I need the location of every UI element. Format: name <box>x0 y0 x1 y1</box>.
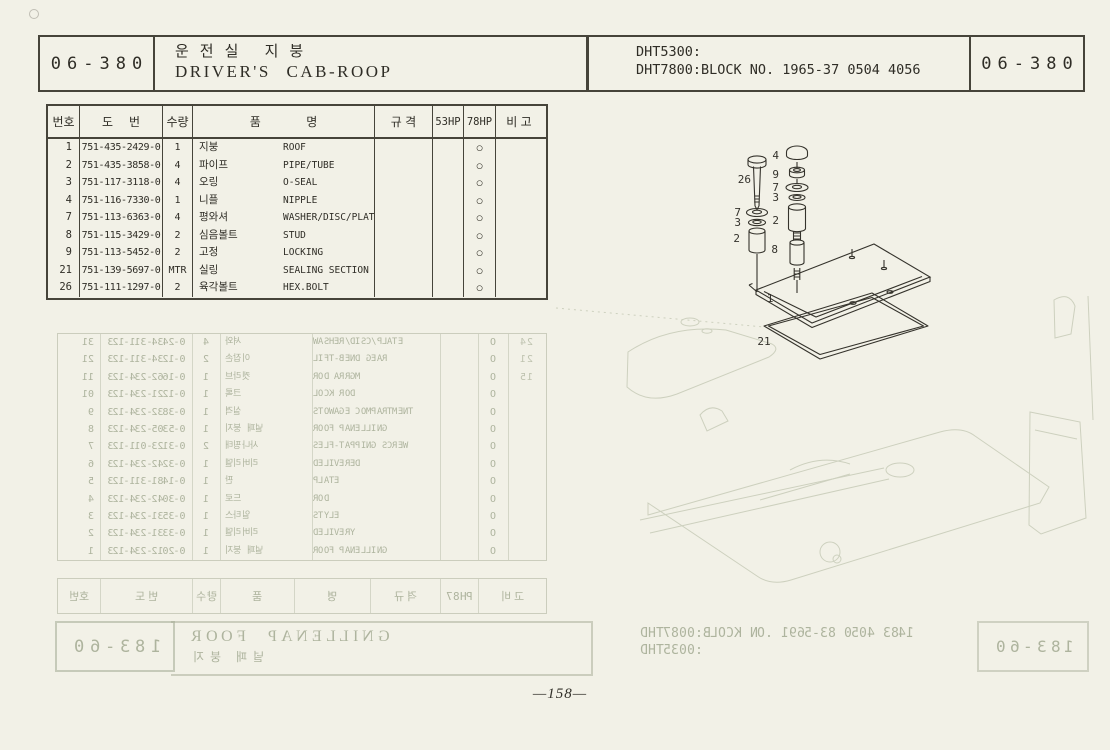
bleed-through-stamp-left: 06-381 <box>55 621 175 672</box>
cell-no: 8 <box>48 227 80 245</box>
part-name-english: STUD <box>283 227 306 245</box>
cell-part-number: 751-116-7330-0 <box>80 192 163 210</box>
part-name-english: NIPPLE <box>283 192 317 210</box>
callout-7r: 7 <box>772 181 779 194</box>
cell-53hp <box>433 209 464 227</box>
part-name-korean: 실링 <box>193 262 283 280</box>
cell-78hp-circle: ○ <box>464 209 496 227</box>
bleed-through-row: 13 321-113-4342-0 4 와셔 WASHER/DISC/PLATE… <box>58 334 546 351</box>
cell-no: 1 <box>48 139 80 157</box>
cell-spec <box>375 244 433 262</box>
part-name-english: WASHER/DISC/PLATE <box>283 209 375 227</box>
model-line-1: DHT5300: <box>636 44 969 62</box>
cell-qty: MTR <box>163 262 193 280</box>
callout-1: 1 <box>767 292 774 305</box>
bleed-through-row: 6 321-432-2423-0 1 델리버리 DELIVERED O <box>58 456 546 473</box>
bleed-through-row: 8 321-432-5035-0 1 지붕 패널 ROOF PANELLING … <box>58 421 546 438</box>
bleed-through-row: 9 321-432-2383-0 1 격실 STOWAGE COMPARTMEN… <box>58 404 546 421</box>
col-header-spec: 규 격 <box>375 106 433 137</box>
cell-remark <box>496 262 542 280</box>
cell-name: 니플 NIPPLE <box>193 192 375 210</box>
col-header-qty: 수량 <box>163 106 193 137</box>
cell-53hp <box>433 192 464 210</box>
cell-part-number: 751-435-2429-0 <box>80 139 163 157</box>
cell-remark <box>496 192 542 210</box>
table-row: 1 751-435-2429-0 1 지붕 ROOF ○ <box>48 139 546 157</box>
table-row: 9 751-113-5452-0 2 고정 LOCKING ○ <box>48 244 546 262</box>
cell-qty: 1 <box>163 139 193 157</box>
cell-name: 심음볼트 STUD <box>193 227 375 245</box>
bleed-through-title-block: ROOF PANELLING 지붕 패널 <box>171 621 593 676</box>
bleed-through-row: 5 321-113-1841-0 1 판 PLATE O <box>58 473 546 490</box>
callout-26: 26 <box>738 173 751 186</box>
bleed-through-row: 1 321-432-2102-0 1 지붕 패널 ROOF PANELLING … <box>58 543 546 560</box>
cell-spec <box>375 209 433 227</box>
col-header-53hp: 53HP <box>433 106 464 137</box>
bleed-through-stamp-right: 06-381 <box>977 621 1089 672</box>
callout-9: 9 <box>772 168 779 181</box>
cell-spec <box>375 279 433 297</box>
cell-part-number: 751-139-5697-0 <box>80 262 163 280</box>
cell-78hp-circle: ○ <box>464 262 496 280</box>
part-name-korean: 오링 <box>193 174 283 192</box>
part-name-english: PIPE/TUBE <box>283 157 334 175</box>
page-title-korean: 운전실 지붕 <box>175 42 393 62</box>
cell-name: 고정 LOCKING <box>193 244 375 262</box>
cell-no: 7 <box>48 209 80 227</box>
part-name-korean: 심음볼트 <box>193 227 283 245</box>
part-name-english: SEALING SECTION <box>283 262 369 280</box>
cell-part-number: 751-113-6363-0 <box>80 209 163 227</box>
model-block: DHT5300: DHT7800:BLOCK NO. 1965-37 0504 … <box>586 35 1085 92</box>
cell-remark <box>496 139 542 157</box>
part-name-korean: 육각볼트 <box>193 279 283 297</box>
cell-no: 4 <box>48 192 80 210</box>
bleed-through-row: 3 321-432-1353-0 1 스타일 STYLE O <box>58 508 546 525</box>
cell-spec <box>375 227 433 245</box>
parts-table-header: 번호 도 번 수량 품 명 규 격 53HP 78HP 비 고 <box>48 106 546 139</box>
page-title: 운전실 지붕 DRIVER'S CAB-ROOP <box>155 37 393 90</box>
cell-78hp-circle: ○ <box>464 139 496 157</box>
cell-qty: 2 <box>163 227 193 245</box>
binder-corner-mark <box>29 9 39 19</box>
model-lines: DHT5300: DHT7800:BLOCK NO. 1965-37 0504 … <box>588 37 969 90</box>
cell-no: 2 <box>48 157 80 175</box>
cell-remark <box>496 279 542 297</box>
cell-qty: 2 <box>163 279 193 297</box>
cell-remark <box>496 174 542 192</box>
cell-remark <box>496 157 542 175</box>
page-number: —158— <box>505 686 615 703</box>
col-header-drawing-no: 도 번 <box>80 106 163 137</box>
title-block: 06-380 운전실 지붕 DRIVER'S CAB-ROOP <box>38 35 589 92</box>
cell-part-number: 751-117-3118-0 <box>80 174 163 192</box>
cell-no: 21 <box>48 262 80 280</box>
callout-8: 8 <box>771 243 778 256</box>
bleed-through-row: 4 321-432-2403-0 1 로드 ROD O <box>58 491 546 508</box>
cell-name: 실링 SEALING SECTION <box>193 262 375 280</box>
col-header-no: 번호 <box>48 106 80 137</box>
part-name-english: O-SEAL <box>283 174 317 192</box>
callout-4: 4 <box>772 149 779 162</box>
cell-part-number: 751-435-3858-0 <box>80 157 163 175</box>
bleed-through-art <box>556 296 1093 582</box>
bleed-through-row: 2 321-432-1333-0 1 델리버리 DELIVERY O <box>58 525 546 542</box>
cell-qty: 4 <box>163 174 193 192</box>
part-name-korean: 지붕 <box>193 139 283 157</box>
cell-name: 지붕 ROOF <box>193 139 375 157</box>
callout-2l: 2 <box>733 232 740 245</box>
section-code: 06-380 <box>40 37 155 90</box>
col-header-remark: 비 고 <box>496 106 542 137</box>
cell-remark <box>496 227 542 245</box>
parts-table: 번호 도 번 수량 품 명 규 격 53HP 78HP 비 고 1 751-43… <box>46 104 548 300</box>
cell-53hp <box>433 227 464 245</box>
section-code-right: 06-380 <box>969 37 1083 90</box>
cell-78hp-circle: ○ <box>464 279 496 297</box>
cell-78hp-circle: ○ <box>464 244 496 262</box>
bleed-through-table: 13 321-113-4342-0 4 와셔 WASHER/DISC/PLATE… <box>57 333 547 561</box>
part-name-korean: 평와셔 <box>193 209 283 227</box>
cell-78hp-circle: ○ <box>464 157 496 175</box>
part-name-english: HEX.BOLT <box>283 279 329 297</box>
cell-name: 오링 O-SEAL <box>193 174 375 192</box>
part-name-korean: 니플 <box>193 192 283 210</box>
page-title-english: DRIVER'S CAB-ROOP <box>175 62 393 82</box>
cell-no: 9 <box>48 244 80 262</box>
bleed-through-table-header: 번호 도 번 수량 품 명 규 격 78HP 비 고 <box>57 578 547 614</box>
bleed-through-row: 11 321-432-2661-0 1 브라켓 ROD ARRGM O 51 <box>58 369 546 386</box>
cell-name: 육각볼트 HEX.BOLT <box>193 279 375 297</box>
cell-spec <box>375 192 433 210</box>
cell-spec <box>375 139 433 157</box>
cell-qty: 4 <box>163 209 193 227</box>
cell-part-number: 751-111-1297-0 <box>80 279 163 297</box>
cell-78hp-circle: ○ <box>464 227 496 245</box>
callout-21: 21 <box>757 335 770 348</box>
bleed-through-row: 10 321-432-1221-0 1 록크 LOCK ROD O <box>58 386 546 403</box>
cell-53hp <box>433 174 464 192</box>
callout-2r: 2 <box>772 214 779 227</box>
bleed-through-row: 7 321-110-3213-0 2 태핑나사 SELF-TAPPING SCR… <box>58 438 546 455</box>
cell-no: 26 <box>48 279 80 297</box>
cell-53hp <box>433 139 464 157</box>
parts-table-body: 1 751-435-2429-0 1 지붕 ROOF ○ 2 751-435-3… <box>48 139 546 297</box>
part-name-korean: 파이프 <box>193 157 283 175</box>
cell-53hp <box>433 279 464 297</box>
cell-spec <box>375 157 433 175</box>
cell-53hp <box>433 244 464 262</box>
callout-3r: 3 <box>772 191 779 204</box>
diagram-callout-labels: 4 26 9 7 3 7 3 2 2 8 1 21 <box>733 149 779 348</box>
cell-name: 파이프 PIPE/TUBE <box>193 157 375 175</box>
table-row: 4 751-116-7330-0 1 니플 NIPPLE ○ <box>48 192 546 210</box>
cell-remark <box>496 209 542 227</box>
part-name-english: LOCKING <box>283 244 323 262</box>
bleed-through-row: 12 321-113-4321-0 2 손잡이 LIFT-BEND GEAR O… <box>58 351 546 368</box>
model-line-2: DHT7800:BLOCK NO. 1965-37 0504 4056 <box>636 62 969 80</box>
cell-spec <box>375 174 433 192</box>
cell-part-number: 751-115-3429-0 <box>80 227 163 245</box>
col-header-78hp: 78HP <box>464 106 496 137</box>
part-name-english: ROOF <box>283 139 306 157</box>
table-row: 21 751-139-5697-0 MTR 실링 SEALING SECTION… <box>48 262 546 280</box>
callout-3l: 3 <box>734 216 741 229</box>
cell-53hp <box>433 157 464 175</box>
cell-spec <box>375 262 433 280</box>
col-header-name: 품 명 <box>193 106 375 137</box>
cell-78hp-circle: ○ <box>464 192 496 210</box>
table-row: 3 751-117-3118-0 4 오링 O-SEAL ○ <box>48 174 546 192</box>
cell-name: 평와셔 WASHER/DISC/PLATE <box>193 209 375 227</box>
cell-part-number: 751-113-5452-0 <box>80 244 163 262</box>
table-row: 26 751-111-1297-0 2 육각볼트 HEX.BOLT ○ <box>48 279 546 297</box>
cell-qty: 4 <box>163 157 193 175</box>
cell-53hp <box>433 262 464 280</box>
table-row: 8 751-115-3429-0 2 심음볼트 STUD ○ <box>48 227 546 245</box>
cell-no: 3 <box>48 174 80 192</box>
cell-qty: 1 <box>163 192 193 210</box>
part-name-korean: 고정 <box>193 244 283 262</box>
roof-assembly-drawing <box>747 146 931 359</box>
callout-7l: 7 <box>734 206 741 219</box>
cell-qty: 2 <box>163 244 193 262</box>
table-row: 2 751-435-3858-0 4 파이프 PIPE/TUBE ○ <box>48 157 546 175</box>
cell-78hp-circle: ○ <box>464 174 496 192</box>
table-row: 7 751-113-6363-0 4 평와셔 WASHER/DISC/PLATE… <box>48 209 546 227</box>
cell-remark <box>496 244 542 262</box>
